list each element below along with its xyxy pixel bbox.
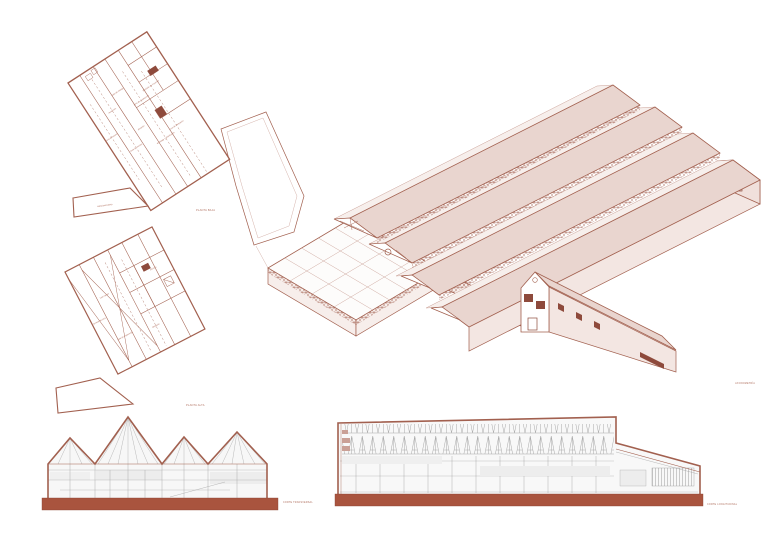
long-section-slab: [335, 494, 703, 506]
longitudinal-section: CORTE LONGITUDINAL: [335, 417, 738, 506]
room-label: almacén: [138, 125, 146, 131]
long-section-caption: CORTE LONGITUDINAL: [707, 503, 738, 506]
axonometric-view: AXONOMETRÍA: [221, 85, 760, 385]
sheet-svg: zona de acceso recepción área de ventas …: [0, 0, 768, 543]
room-label: terraza técnica: [93, 316, 107, 325]
plan-roof-bracing: [68, 255, 158, 368]
cross-section-caption: CORTE TRANSVERSAL: [283, 501, 313, 504]
room-label: estacionamiento: [97, 203, 113, 208]
ground-floor-plan: zona de acceso recepción área de ventas …: [68, 32, 230, 217]
plan-ground-annex: [73, 188, 148, 217]
room-label: sala de exposición: [117, 331, 134, 341]
front-gable-building: [521, 272, 676, 372]
room-label: embalaje y distribución: [156, 131, 176, 145]
front-building-side-wall: [549, 287, 676, 372]
axonometric-caption: AXONOMETRÍA: [735, 382, 755, 385]
site-plot-outline: [221, 112, 304, 268]
plan-roof-partitions: [79, 227, 205, 367]
architectural-sheet: zona de acceso recepción área de ventas …: [0, 0, 768, 543]
plan-ground-outline: [68, 32, 230, 211]
room-label: zona de acceso: [105, 133, 119, 143]
plan-ground-caption: PLANTA BAJA: [196, 208, 215, 212]
plan-roof-annex: [56, 378, 133, 413]
roof-plan: terraza técnica lucernarios sala de expo…: [56, 227, 205, 413]
room-label: zona de despacho: [169, 120, 185, 131]
room-label: sala de trabajo: [111, 86, 125, 96]
plan-roof-fixtures: [141, 256, 174, 293]
cross-section-slab: [42, 498, 278, 510]
plan-roof-outline: [65, 227, 205, 374]
room-label: depósito: [152, 322, 161, 329]
cross-section: CORTE TRANSVERSAL: [42, 417, 313, 510]
plan-roof-caption: PLANTA ALTA: [186, 403, 205, 407]
long-section-truss-band: [342, 424, 614, 454]
room-label: área de ventas: [130, 143, 143, 153]
plan-ground-partitions: [80, 32, 230, 203]
room-label: depósito de insumos: [142, 79, 160, 92]
room-label: recepción: [108, 107, 118, 115]
plan-roof-room-labels: terraza técnica lucernarios sala de expo…: [83, 266, 181, 352]
plan-ground-room-labels: zona de acceso recepción área de ventas …: [86, 68, 188, 167]
long-section-window-band: [652, 468, 694, 486]
